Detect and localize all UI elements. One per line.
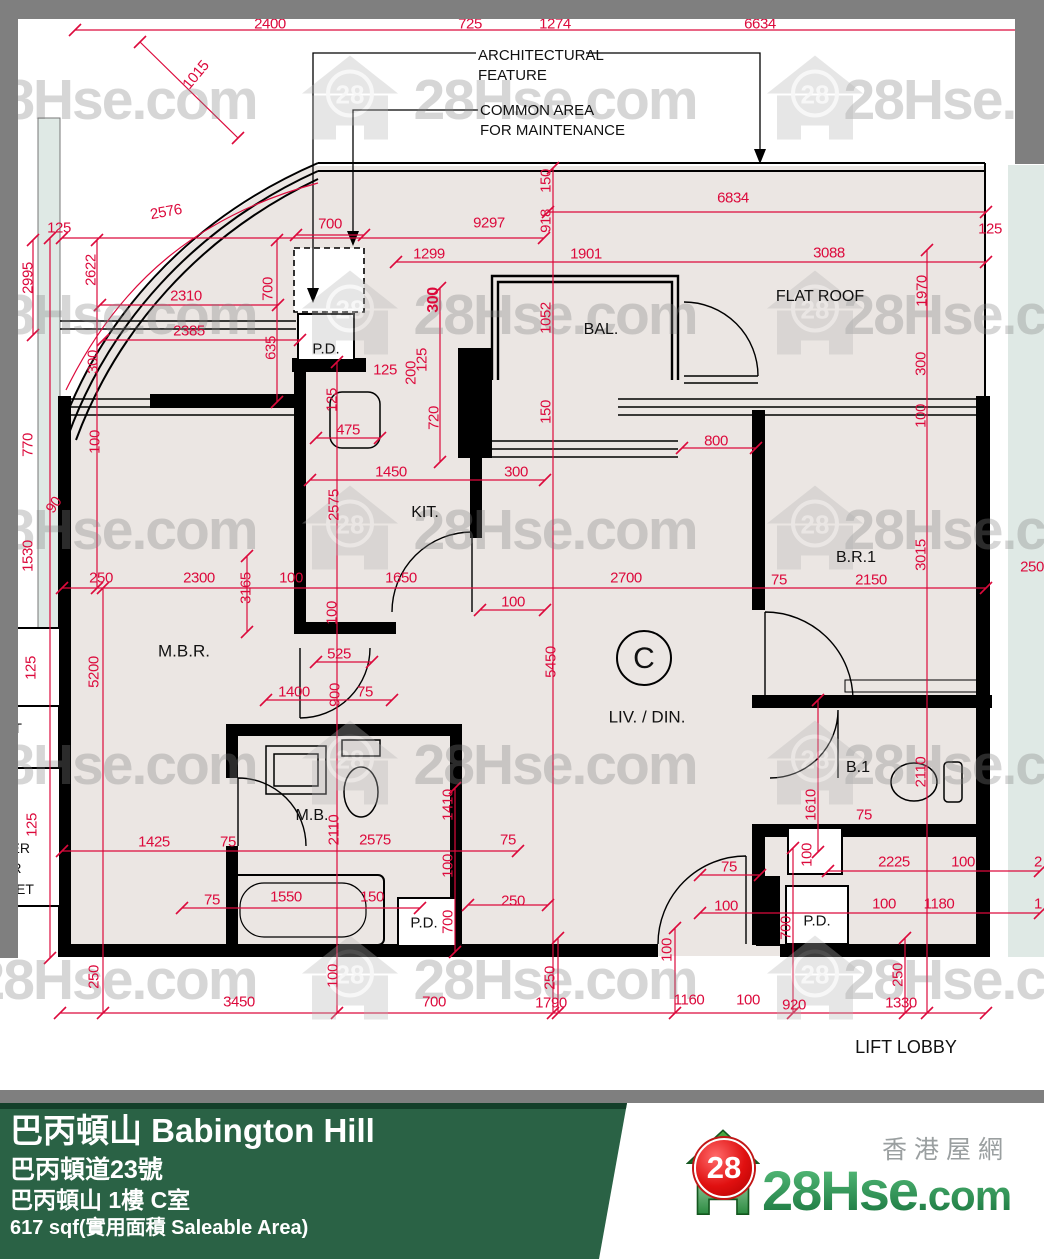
margin-right-top [1015,19,1044,164]
dimension-label: 2385 [173,324,205,339]
dimension-label: 2700 [610,571,642,586]
dimension-label: 5200 [87,656,102,688]
dimension-label: 75 [721,860,737,875]
dimension-label: 75 [771,573,787,588]
dimension-label: 525 [327,647,351,662]
dimension-label: 100 [951,855,975,870]
dimension-label: 100 [279,571,303,586]
room-label: P.D. [803,914,830,929]
dimension-label: 100 [800,843,815,867]
dimension-label: 125 [373,363,397,378]
dimension-label: 150 [360,890,384,905]
dimension-label: 90 [43,494,64,516]
dimension-label: 1 [1034,897,1042,912]
dimension-label: 2110 [914,757,929,788]
dimension-label: 1160 [674,993,705,1008]
dimension-label: 250 [89,571,113,586]
dimension-label: 1530 [21,540,36,572]
dimension-label: 250 [543,966,558,990]
room-label: KIT. [411,505,439,521]
dimension-label: 125 [47,221,71,236]
dimension-label: 800 [704,434,728,449]
dimension-label: 1790 [535,996,567,1011]
room-label: LIFT LOBBY [855,1038,957,1056]
callout-text: ARCHITECTURALFEATURE [478,46,604,87]
dimension-label: 300 [426,287,442,313]
dimension-label: 2300 [183,571,215,586]
dimension-label: 75 [220,835,236,850]
dimension-label: 2622 [84,254,99,286]
dimension-label: 1901 [570,247,602,262]
dimension-label: 100 [736,993,760,1008]
dimension-label: 1330 [885,996,917,1011]
dimension-label: 700 [261,277,276,301]
dimension-label: 3450 [223,995,255,1010]
dimension-label: 1015 [180,58,212,92]
dimension-label: 3015 [914,539,929,571]
dimension-label: 2575 [327,489,342,521]
dimension-label: 918 [539,209,554,233]
dimension-label: 100 [660,938,675,962]
dimension-label: 2110 [327,815,342,846]
room-label: B.1 [846,760,870,776]
room-label: B.R.1 [836,550,876,566]
dimension-label: 3088 [813,246,845,261]
dimension-label: 300 [914,352,929,376]
room-label: BAL. [584,322,619,338]
dimension-label: 100 [325,601,340,625]
dimension-label: 900 [328,683,343,707]
dimension-label: 1650 [385,571,417,586]
dimension-label: 75 [856,808,872,823]
margin-banner-top [0,1090,1044,1103]
dimension-label: 1400 [278,685,310,700]
dimension-label: 250 [1020,560,1044,575]
dimension-label: 125 [325,388,340,412]
dimension-label: 1410 [441,789,456,821]
dimension-label: 2150 [855,573,887,588]
dimension-label: 100 [88,430,103,454]
dimension-label: 1180 [924,897,955,912]
dimension-label: 150 [539,169,554,193]
property-address: 巴丙頓道23號 [10,1154,375,1186]
logo-tld: .com [917,1172,1011,1219]
dimension-label: 1550 [270,890,302,905]
dimension-label: 920 [782,998,806,1013]
site-logo: 28 香港屋網 28Hse.com [686,1118,1026,1248]
dimension-label: 720 [427,406,442,430]
dimension-label: 2576 [149,202,183,222]
dimension-label: 75 [500,833,516,848]
dimension-label: 250 [87,965,102,989]
room-label: M.B.R. [158,643,210,660]
dimension-label: 150 [539,400,554,424]
dimension-label: 125 [978,222,1002,237]
dimension-label: 2575 [359,833,391,848]
dimension-label: 1970 [915,275,930,307]
dimension-label: 125 [25,813,40,837]
dimension-label: 5450 [544,646,559,678]
dimension-label: 100 [872,897,896,912]
dimension-label: 700 [441,910,456,934]
dimension-label: 770 [21,433,36,457]
property-unit: 巴丙頓山 1樓 C室 [10,1186,375,1216]
dimension-label: 3165 [239,572,254,604]
callout-text: COMMON AREAFOR MAINTENANCE [480,101,625,142]
dimension-label: 300 [86,350,101,374]
floorplan-page: 28Hse.com28Hse.com28Hse.com28Hse.com28Hs… [0,0,1044,1259]
property-title: 巴丙頓山 Babington Hill [10,1109,375,1154]
dimension-label: 1450 [375,465,407,480]
dimension-label: 250 [501,894,525,909]
dimension-label: 125 [24,656,39,680]
dimension-label: 700 [779,916,794,940]
dimension-label: 700 [318,217,342,232]
room-label: LIV. / DIN. [609,709,686,726]
dimension-label: 2 [1034,855,1042,870]
dimension-label: 1299 [413,247,445,262]
margin-left [0,19,18,958]
dimension-label: 2310 [170,289,202,304]
dimension-label: 9297 [473,216,505,231]
dimension-label: 1610 [804,789,819,821]
dimension-label: 100 [714,899,738,914]
dimension-label: 75 [357,685,373,700]
logo-site-name: 28Hse [762,1159,917,1222]
label-layer: 2400725127466341015257612570092976834125… [0,0,1044,1090]
room-label: C [633,644,655,674]
dimension-label: 300 [504,465,528,480]
logo-wordmark: 28Hse.com [762,1158,1011,1223]
margin-top [0,0,1044,19]
dimension-label: 75 [204,893,220,908]
room-label: FLAT ROOF [776,289,864,305]
dimension-label: 100 [441,854,456,878]
room-label: M.B. [296,808,329,824]
dimension-label: 125 [415,348,430,372]
dimension-label: 6834 [717,191,749,206]
dimension-label: 475 [336,423,360,438]
dimension-label: 1425 [138,835,170,850]
room-label: P.D. [312,342,339,357]
dimension-label: 635 [264,336,279,360]
dimension-label: 1052 [539,302,554,334]
room-label: P.D. [410,916,437,931]
dimension-label: 100 [326,964,341,988]
property-area: 617 sqf(實用面積 Saleable Area) [10,1215,375,1242]
dimension-label: 100 [914,404,929,428]
dimension-label: 250 [891,963,906,987]
logo-28-badge: 28 [694,1138,754,1198]
dimension-label: 2225 [878,855,910,870]
dimension-label: 700 [422,995,446,1010]
dimension-label: 100 [501,595,525,610]
dimension-label: 2995 [21,262,36,294]
